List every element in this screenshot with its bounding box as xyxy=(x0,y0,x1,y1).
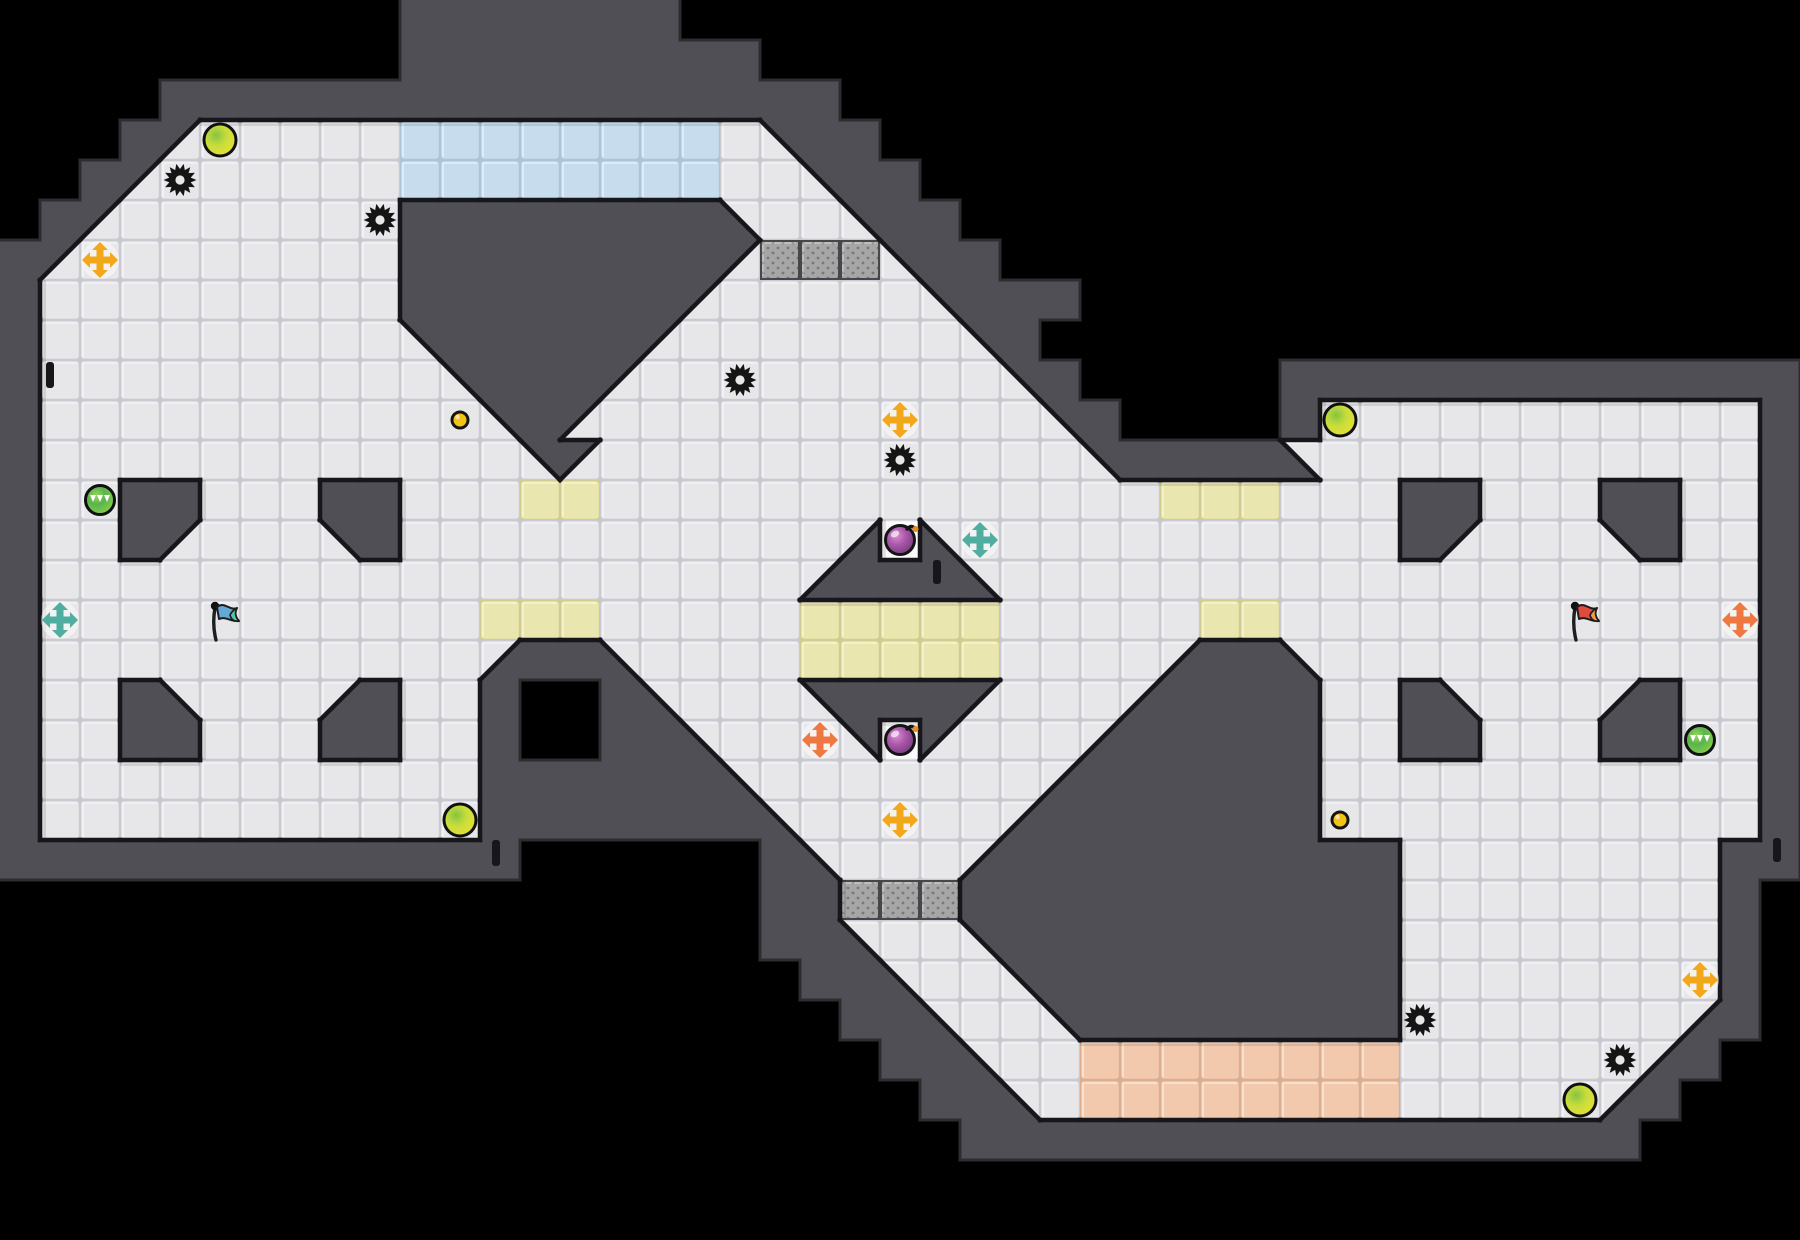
boost-pad-teal xyxy=(41,601,79,639)
wall-tick xyxy=(46,362,54,388)
boost-pad-yellow xyxy=(1681,961,1719,999)
powerup-ball-icon xyxy=(444,804,476,836)
powerup-ball-icon xyxy=(1324,404,1356,436)
boost-pad-orange xyxy=(801,721,839,759)
wall-tick xyxy=(933,560,941,584)
wall-tick xyxy=(1773,838,1781,862)
tile-layer xyxy=(0,0,1800,1160)
powerup-green-icon xyxy=(86,486,115,515)
boost-pad-orange xyxy=(1721,601,1759,639)
gold-dot-icon xyxy=(452,412,468,428)
powerup-green-icon xyxy=(1686,726,1715,755)
boost-pad-yellow xyxy=(881,401,919,439)
gold-dot-icon xyxy=(1332,812,1348,828)
map-svg xyxy=(0,0,1800,1240)
boost-pad-yellow xyxy=(881,801,919,839)
game-map-canvas xyxy=(0,0,1800,1240)
boost-pad-yellow xyxy=(81,241,119,279)
powerup-ball-icon xyxy=(1564,1084,1596,1116)
boost-pad-teal xyxy=(961,521,999,559)
powerup-ball-icon xyxy=(204,124,236,156)
wall-tick xyxy=(492,840,500,866)
